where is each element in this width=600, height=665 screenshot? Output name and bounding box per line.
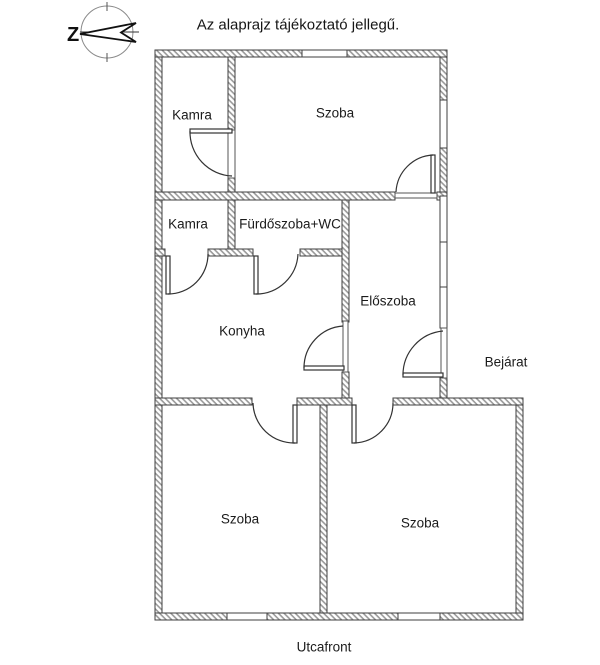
- door-kamra-mid: [166, 254, 208, 294]
- room-label-furdoszoba: Fürdőszoba+WC: [239, 217, 341, 232]
- compass-north-label: Z: [67, 24, 79, 46]
- door-szoba-top: [396, 155, 435, 193]
- room-label-kamra-top: Kamra: [172, 108, 212, 123]
- window-szoba-right: [440, 100, 447, 148]
- door-entrance: [403, 331, 443, 377]
- window-szoba-top: [302, 50, 347, 57]
- window-eloszoba-right-2: [440, 242, 447, 287]
- door-kamra-top: [190, 129, 232, 176]
- room-label-szoba-bottom-right: Szoba: [401, 516, 439, 531]
- floor-plan-drawing: Z: [0, 0, 600, 665]
- street-front-label: Utcafront: [297, 640, 352, 655]
- walls-group: [155, 50, 523, 620]
- door-szoba-bottom-left: [253, 403, 297, 443]
- door-szoba-bottom-right: [352, 403, 393, 443]
- room-label-szoba-top: Szoba: [316, 106, 354, 121]
- room-label-konyha: Konyha: [219, 324, 265, 339]
- window-eloszoba-right-1: [440, 196, 447, 242]
- room-label-szoba-bottom-left: Szoba: [221, 512, 259, 527]
- floor-plan-page: Z: [0, 0, 600, 665]
- doors-group: [166, 129, 443, 443]
- plan-disclaimer-title: Az alaprajz tájékoztató jellegű.: [197, 17, 400, 34]
- window-szoba-bottom-right: [398, 613, 440, 620]
- compass-icon: Z: [67, 2, 139, 62]
- room-label-kamra-mid: Kamra: [168, 217, 208, 232]
- window-szoba-bottom-left: [227, 613, 267, 620]
- window-eloszoba-right-3: [440, 287, 447, 328]
- door-furdoszoba: [254, 254, 298, 294]
- room-label-eloszoba: Előszoba: [360, 294, 416, 309]
- door-konyha-eloszoba: [304, 326, 344, 370]
- entrance-label: Bejárat: [485, 355, 528, 370]
